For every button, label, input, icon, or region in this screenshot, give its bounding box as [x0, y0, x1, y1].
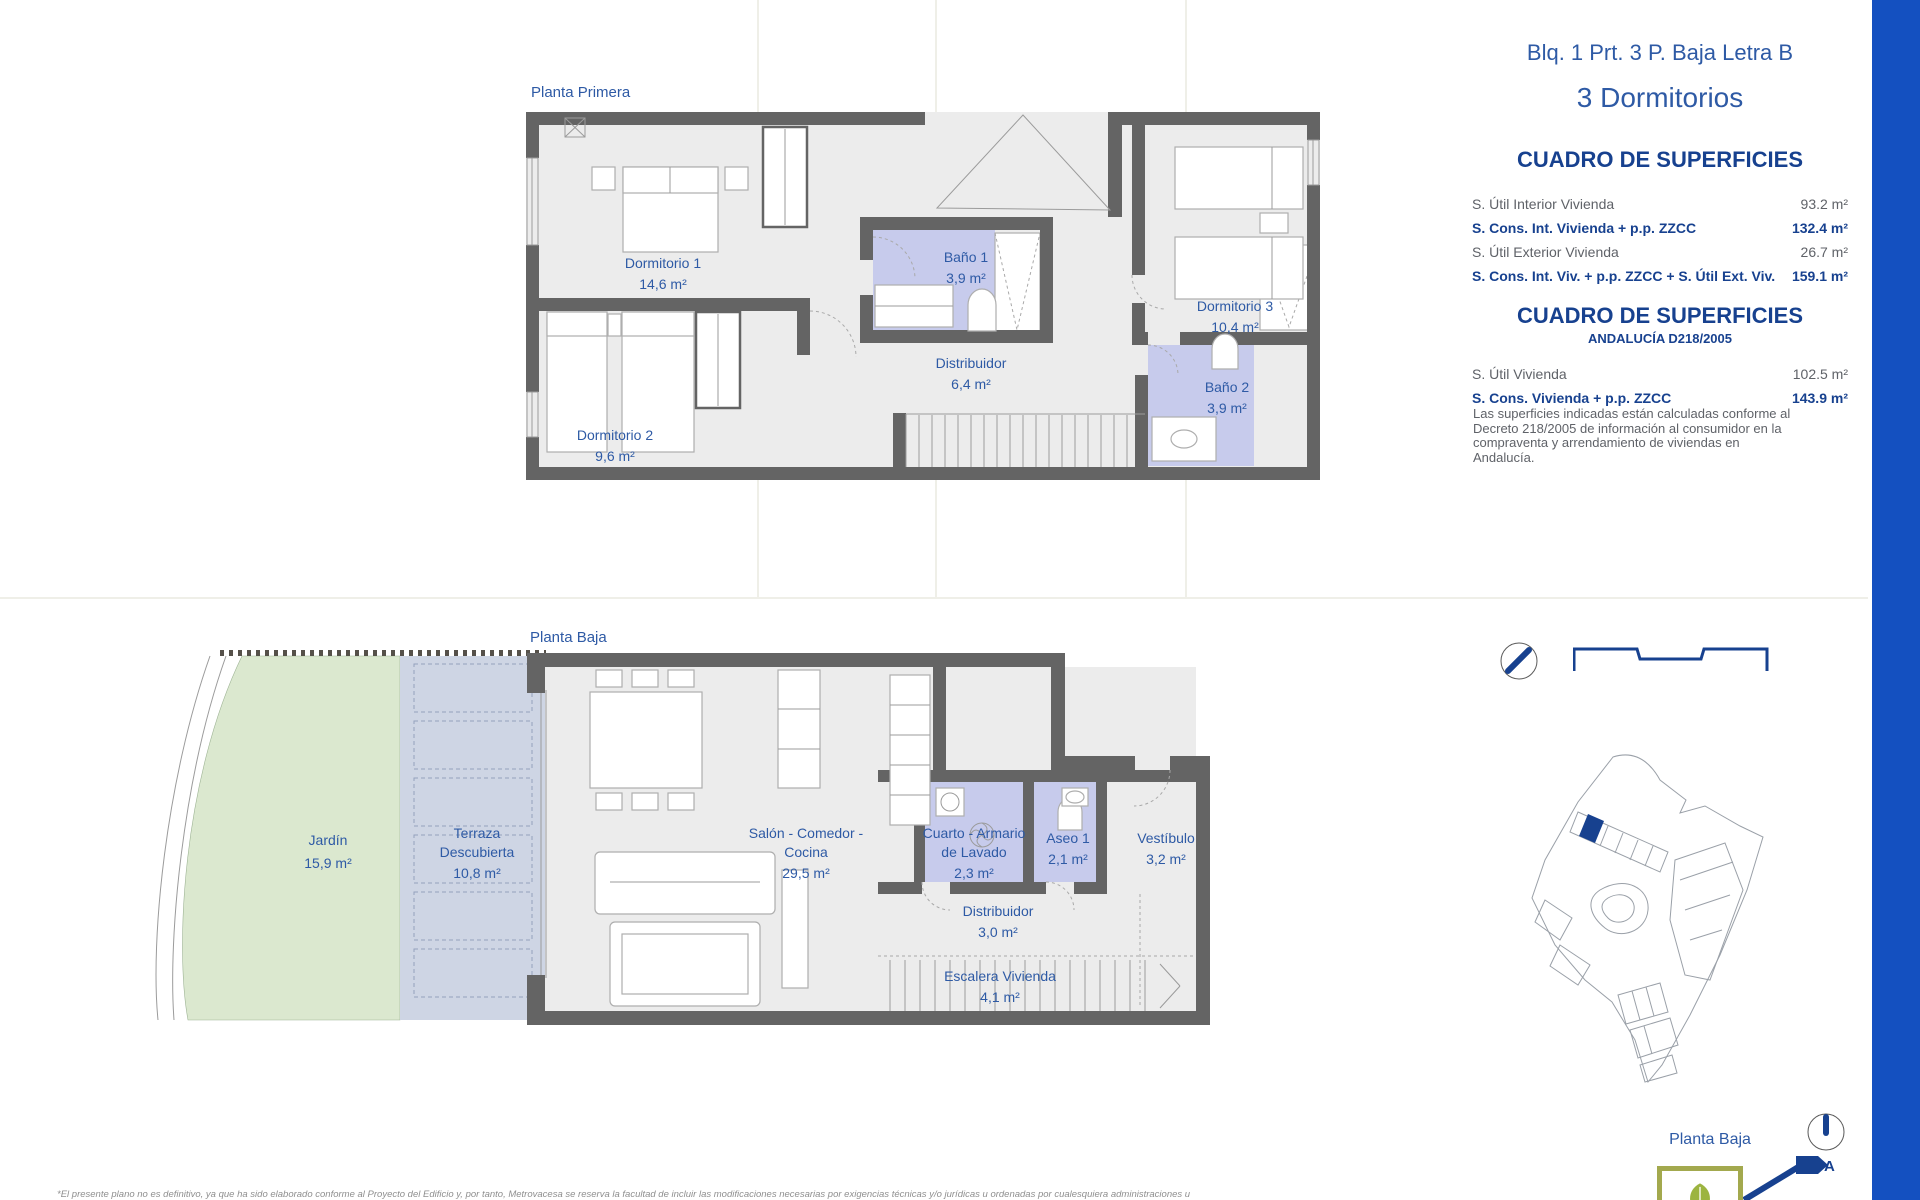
row-label: S. Útil Exterior Vivienda: [1472, 244, 1619, 260]
room-name: Dormitorio 1: [578, 254, 748, 273]
decree-note: Las superficies indicadas están calculad…: [1473, 407, 1803, 465]
row-value: 143.9 m²: [1792, 390, 1848, 406]
room-area: 9,6 m²: [530, 447, 700, 466]
room-label-vestibulo: Vestíbulo 3,2 m²: [1116, 829, 1216, 869]
room-area: 15,9 m²: [268, 854, 388, 873]
room-area: 10,8 m²: [427, 864, 527, 883]
unit-title: Blq. 1 Prt. 3 P. Baja Letra B: [1472, 40, 1848, 66]
compass-icon: [1805, 1111, 1847, 1153]
north-arrow-icon: [1738, 1148, 1838, 1200]
room-name: Distribuidor: [928, 902, 1068, 921]
table-row: S. Útil Vivienda 102.5 m²: [1472, 362, 1848, 386]
row-label: S. Cons. Vivienda + p.p. ZZCC: [1472, 390, 1671, 406]
room-name: Baño 1: [906, 248, 1026, 267]
room-name: Escalera Vivienda: [920, 967, 1080, 986]
surface-table-1-title: CUADRO DE SUPERFICIES: [1472, 147, 1848, 173]
row-value: 159.1 m²: [1792, 268, 1848, 284]
room-area: 3,2 m²: [1116, 850, 1216, 869]
room-name: Dormitorio 3: [1150, 297, 1320, 316]
table-row: S. Cons. Int. Viv. + p.p. ZZCC + S. Útil…: [1472, 264, 1848, 288]
room-label-aseo-1: Aseo 1 2,1 m²: [1018, 829, 1118, 869]
room-name: Baño 2: [1167, 378, 1287, 397]
room-label-terraza: Terraza Descubierta 10,8 m²: [427, 824, 527, 883]
room-label-jardin: Jardín 15,9 m²: [268, 831, 388, 873]
room-label-dormitorio-3: Dormitorio 3 10,4 m²: [1150, 297, 1320, 337]
room-name: Terraza Descubierta: [427, 824, 527, 862]
floorplan-sheet: Planta Primera: [0, 0, 1920, 1200]
row-label: S. Cons. Int. Vivienda + p.p. ZZCC: [1472, 220, 1696, 236]
room-name: Distribuidor: [901, 354, 1041, 373]
leaf-logo-icon: [1662, 1171, 1738, 1200]
room-area: 29,5 m²: [726, 864, 886, 883]
room-name: Cuarto - Armario de Lavado: [916, 824, 1032, 862]
unit-subtitle: 3 Dormitorios: [1472, 82, 1848, 114]
room-label-distribuidor-p1: Distribuidor 6,4 m²: [901, 354, 1041, 394]
room-area: 4,1 m²: [920, 988, 1080, 1007]
row-value: 102.5 m²: [1793, 366, 1848, 382]
row-value: 93.2 m²: [1801, 196, 1848, 212]
room-label-bano-2: Baño 2 3,9 m²: [1167, 378, 1287, 418]
table-row: S. Útil Exterior Vivienda 26.7 m²: [1472, 240, 1848, 264]
room-name: Aseo 1: [1018, 829, 1118, 848]
surface-table-2-subtitle: ANDALUCÍA D218/2005: [1472, 331, 1848, 346]
legal-disclaimer: *El presente plano no es definitivo, ya …: [57, 1189, 1557, 1200]
highlighted-unit: [1579, 814, 1604, 843]
room-label-salon: Salón - Comedor - Cocina 29,5 m²: [726, 824, 886, 883]
fold-line-horizontal: [0, 597, 1868, 599]
room-name: Dormitorio 2: [530, 426, 700, 445]
room-area: 2,3 m²: [916, 864, 1032, 883]
room-name: Jardín: [268, 831, 388, 850]
building-footprint-outline: [1573, 645, 1773, 677]
table-row: S. Útil Interior Vivienda 93.2 m²: [1472, 192, 1848, 216]
row-label: S. Cons. Int. Viv. + p.p. ZZCC + S. Útil…: [1472, 268, 1775, 284]
room-label-dormitorio-2: Dormitorio 2 9,6 m²: [530, 426, 700, 466]
compass-icon: [1498, 640, 1540, 682]
room-area: 3,9 m²: [1167, 399, 1287, 418]
room-area: 3,9 m²: [906, 269, 1026, 288]
row-label: S. Útil Interior Vivienda: [1472, 196, 1614, 212]
room-area: 2,1 m²: [1018, 850, 1118, 869]
row-value: 132.4 m²: [1792, 220, 1848, 236]
first-floor-plan-title: Planta Primera: [531, 84, 630, 101]
room-area: 6,4 m²: [901, 375, 1041, 394]
surface-table-2-title: CUADRO DE SUPERFICIES: [1472, 303, 1848, 329]
room-name: Vestíbulo: [1116, 829, 1216, 848]
site-plan-title: Planta Baja: [1630, 1131, 1790, 1149]
room-label-escalera: Escalera Vivienda 4,1 m²: [920, 967, 1080, 1007]
page-accent-bar: [1872, 0, 1920, 1200]
room-label-distribuidor-pb: Distribuidor 3,0 m²: [928, 902, 1068, 942]
developer-logo: [1657, 1166, 1743, 1200]
north-arrow-label: A: [1824, 1158, 1835, 1175]
row-value: 26.7 m²: [1801, 244, 1848, 260]
site-plan-map: [1500, 740, 1790, 1090]
room-area: 10,4 m²: [1150, 318, 1320, 337]
room-area: 14,6 m²: [578, 275, 748, 294]
room-area: 3,0 m²: [928, 923, 1068, 942]
room-label-cuarto-lavado: Cuarto - Armario de Lavado 2,3 m²: [916, 824, 1032, 883]
room-label-dormitorio-1: Dormitorio 1 14,6 m²: [578, 254, 748, 294]
row-label: S. Útil Vivienda: [1472, 366, 1567, 382]
room-name: Salón - Comedor - Cocina: [726, 824, 886, 862]
room-label-bano-1: Baño 1 3,9 m²: [906, 248, 1026, 288]
table-row: S. Cons. Int. Vivienda + p.p. ZZCC 132.4…: [1472, 216, 1848, 240]
